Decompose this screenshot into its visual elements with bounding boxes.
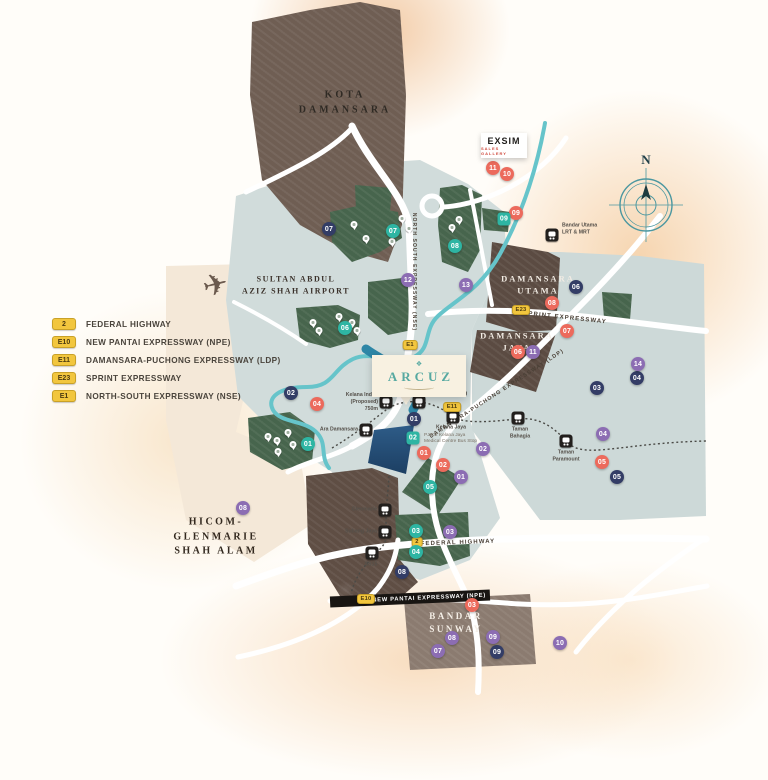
marker-navy-06[interactable]: 06: [569, 280, 583, 294]
marker-purple-07[interactable]: 07: [431, 644, 445, 658]
marker-navy-04[interactable]: 04: [630, 371, 644, 385]
exsim-subtitle: SALES GALLERY: [481, 146, 527, 156]
legend-label: DAMANSARA-PUCHONG EXPRESSWAY (LDP): [86, 356, 281, 365]
marker-navy-09[interactable]: 09: [490, 645, 504, 659]
route-shield-badge: 2: [52, 318, 76, 330]
marker-teal-07[interactable]: 07: [386, 224, 400, 238]
arcuz-flourish: [404, 385, 434, 390]
marker-salmon-09[interactable]: 09: [509, 206, 523, 220]
exsim-callout: EXSIM SALES GALLERY: [481, 133, 527, 158]
route-shield-badge: E10: [52, 336, 76, 348]
arcuz-pointer: [400, 396, 412, 411]
legend-row: E10NEW PANTAI EXPRESSWAY (NPE): [52, 336, 322, 348]
marker-salmon-06[interactable]: 06: [511, 345, 525, 359]
marker-teal-03[interactable]: 03: [409, 524, 423, 538]
legend-label: NORTH-SOUTH EXPRESSWAY (NSE): [86, 392, 241, 401]
marker-purple-03[interactable]: 03: [443, 525, 457, 539]
marker-purple-09[interactable]: 09: [486, 630, 500, 644]
marker-teal-01[interactable]: 01: [301, 437, 315, 451]
marker-navy-03[interactable]: 03: [590, 381, 604, 395]
marker-navy-01[interactable]: 01: [407, 412, 421, 426]
marker-purple-08[interactable]: 08: [445, 631, 459, 645]
legend-row: E11DAMANSARA-PUCHONG EXPRESSWAY (LDP): [52, 354, 322, 366]
marker-teal-08[interactable]: 08: [448, 239, 462, 253]
marker-teal-04[interactable]: 04: [409, 545, 423, 559]
marker-teal-05[interactable]: 05: [423, 480, 437, 494]
marker-salmon-08[interactable]: 08: [545, 296, 559, 310]
exsim-pointer: [497, 158, 505, 169]
marker-purple-08[interactable]: 08: [236, 501, 250, 515]
legend-label: FEDERAL HIGHWAY: [86, 320, 171, 329]
marker-teal-06[interactable]: 06: [338, 321, 352, 335]
legend-row: E23SPRINT EXPRESSWAY: [52, 372, 322, 384]
legend-label: NEW PANTAI EXPRESSWAY (NPE): [86, 338, 231, 347]
marker-purple-12[interactable]: 12: [401, 273, 415, 287]
marker-purple-10[interactable]: 10: [553, 636, 567, 650]
route-shield-badge: E11: [52, 354, 76, 366]
exsim-name: EXSIM: [487, 136, 520, 146]
legend-row: 2FEDERAL HIGHWAY: [52, 318, 322, 330]
compass-n-label: N: [641, 152, 651, 167]
legend-row: E1NORTH-SOUTH EXPRESSWAY (NSE): [52, 390, 322, 402]
marker-purple-11[interactable]: 11: [526, 345, 540, 359]
arcuz-logo-mark: ❖: [416, 362, 422, 368]
marker-navy-05[interactable]: 05: [610, 470, 624, 484]
marker-purple-02[interactable]: 02: [476, 442, 490, 456]
arcuz-callout: ❖ ARCUZ: [372, 355, 466, 397]
marker-purple-04[interactable]: 04: [596, 427, 610, 441]
marker-purple-13[interactable]: 13: [459, 278, 473, 292]
marker-salmon-07[interactable]: 07: [560, 324, 574, 338]
highway-legend: 2FEDERAL HIGHWAYE10NEW PANTAI EXPRESSWAY…: [52, 318, 322, 408]
marker-teal-09[interactable]: 09: [498, 213, 511, 226]
route-shield-badge: E23: [52, 372, 76, 384]
marker-purple-14[interactable]: 14: [631, 357, 645, 371]
compass-rose: N: [608, 148, 684, 252]
route-shield-badge: E1: [52, 390, 76, 402]
marker-salmon-05[interactable]: 05: [595, 455, 609, 469]
marker-purple-01[interactable]: 01: [454, 470, 468, 484]
marker-salmon-02[interactable]: 02: [436, 458, 450, 472]
marker-salmon-01[interactable]: 01: [417, 446, 431, 460]
arcuz-name: ARCUZ: [388, 369, 454, 385]
marker-teal-02[interactable]: 02: [407, 432, 420, 445]
marker-navy-08[interactable]: 08: [395, 565, 409, 579]
marker-salmon-10[interactable]: 10: [500, 167, 514, 181]
marker-navy-07[interactable]: 07: [322, 222, 336, 236]
legend-label: SPRINT EXPRESSWAY: [86, 374, 182, 383]
marker-salmon-03[interactable]: 03: [465, 598, 479, 612]
location-map: NEW PANTAI EXPRESSWAY (NPE) KOTA DAMANSA…: [0, 0, 768, 737]
